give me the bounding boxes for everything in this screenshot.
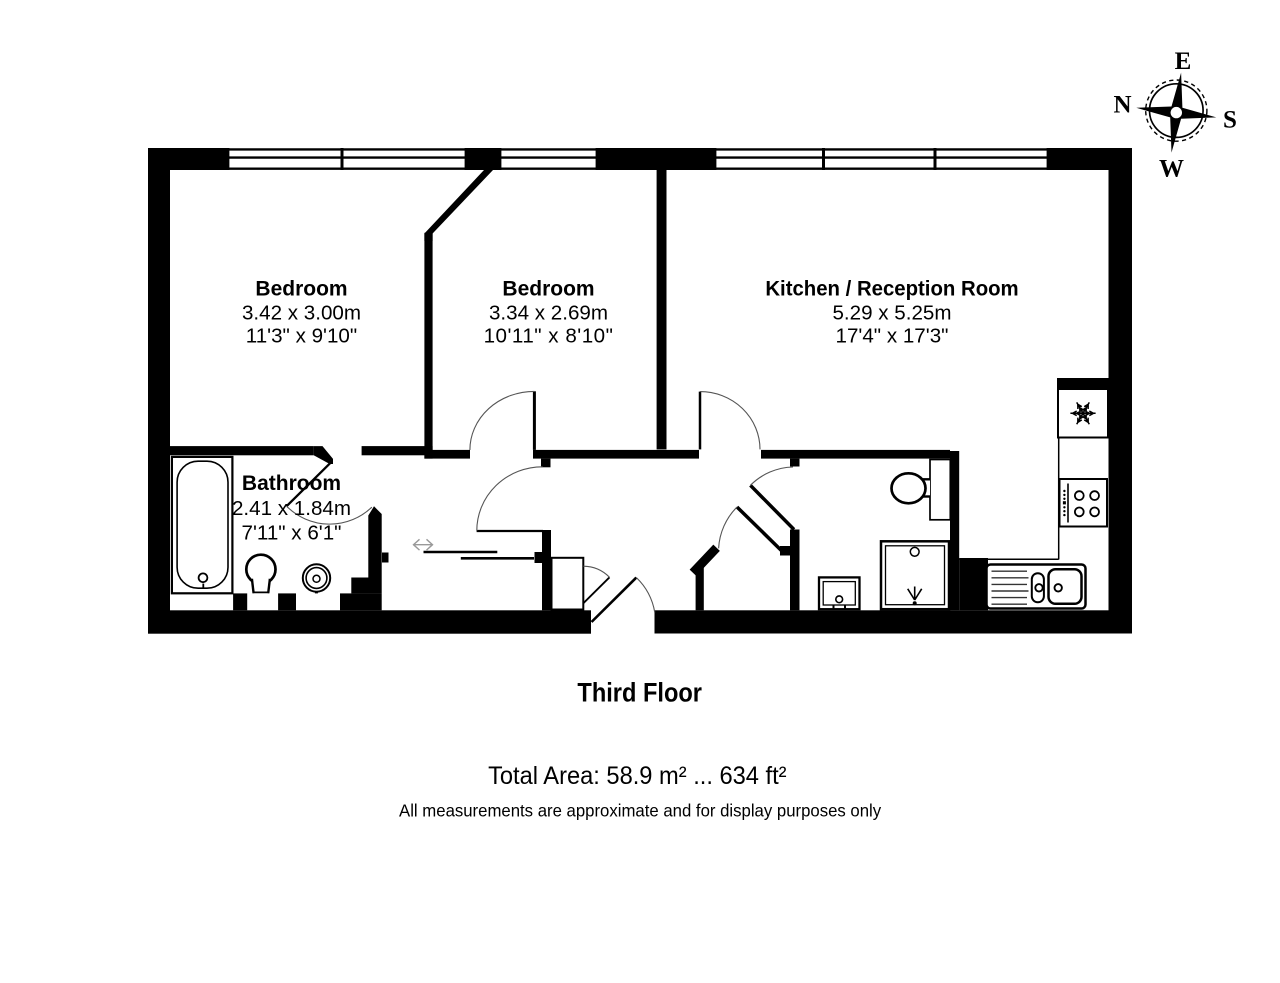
svg-text:E: E	[1175, 48, 1192, 75]
svg-text:5.29 x 5.25m: 5.29 x 5.25m	[832, 302, 951, 325]
svg-text:17'4" x 17'3": 17'4" x 17'3"	[836, 324, 949, 347]
svg-text:3.42 x 3.00m: 3.42 x 3.00m	[242, 302, 361, 325]
svg-text:Total Area: 58.9 m² ... 634 ft: Total Area: 58.9 m² ... 634 ft²	[488, 762, 786, 790]
svg-text:3.34 x 2.69m: 3.34 x 2.69m	[489, 302, 608, 325]
svg-text:7'11" x 6'1": 7'11" x 6'1"	[242, 521, 342, 544]
svg-text:2.41 x 1.84m: 2.41 x 1.84m	[232, 497, 351, 520]
svg-text:All measurements are approxima: All measurements are approximate and for…	[399, 800, 881, 821]
svg-text:10'11" x 8'10": 10'11" x 8'10"	[484, 324, 614, 347]
svg-text:11'3" x 9'10": 11'3" x 9'10"	[246, 324, 357, 347]
svg-text:Bedroom: Bedroom	[255, 277, 347, 300]
svg-text:Bedroom: Bedroom	[502, 277, 594, 300]
svg-text:Bathroom: Bathroom	[242, 472, 341, 495]
svg-text:Third Floor: Third Floor	[577, 678, 702, 708]
svg-text:Kitchen / Reception Room: Kitchen / Reception Room	[765, 277, 1018, 300]
svg-text:N: N	[1113, 92, 1131, 119]
svg-text:W: W	[1159, 155, 1184, 182]
svg-text:S: S	[1223, 107, 1237, 134]
